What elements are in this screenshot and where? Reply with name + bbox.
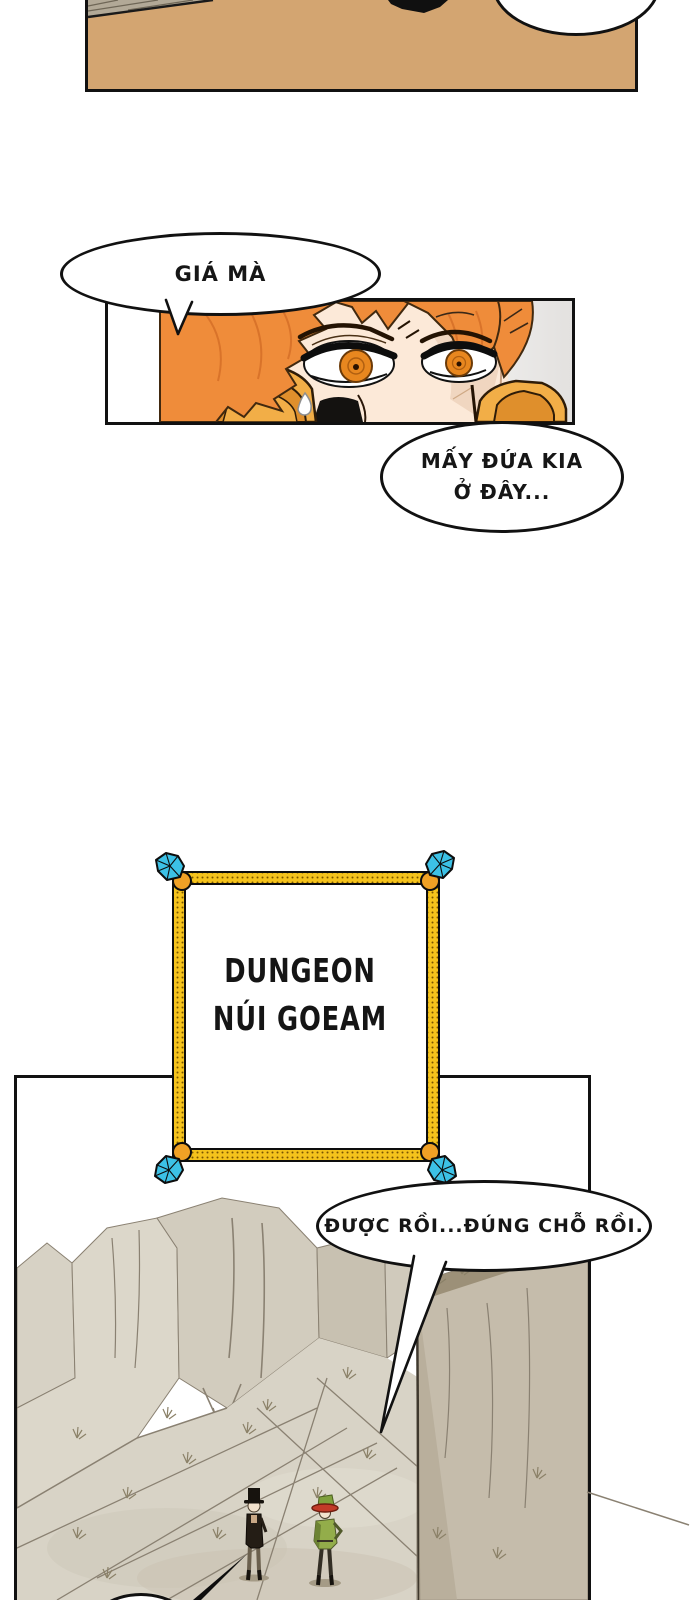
sign-subtitle: NÚI GOEAM <box>183 995 417 1043</box>
speech-bubble-gia-ma: GIÁ MÀ <box>60 232 381 316</box>
sign-text: DUNGEON NÚI GOEAM <box>150 947 450 1043</box>
bubble-text-gia-ma: GIÁ MÀ <box>175 262 267 286</box>
speech-bubble-may-dua: MẤY ĐỨA KIA Ở ĐÂY... <box>380 421 624 533</box>
bubble-text-duoc-roi: ĐƯỢC RỒI...ĐÚNG CHỖ RỒI. <box>324 1215 644 1237</box>
gem-icon <box>155 1156 183 1183</box>
stray-pencil-line <box>585 1485 690 1530</box>
speech-bubble-duoc-roi: ĐƯỢC RỒI...ĐÚNG CHỖ RỒI. <box>316 1180 652 1272</box>
bubble-text-may-dua-line2: Ở ĐÂY... <box>454 477 551 508</box>
comic-page: GIÁ MÀ <box>0 0 690 1600</box>
right-eye <box>422 342 496 382</box>
hair-tuft <box>388 0 448 13</box>
sign-title: DUNGEON <box>183 947 417 995</box>
bubble-tail-duoc-roi <box>375 1250 455 1440</box>
gem-icon <box>156 853 184 880</box>
bubble-tail-bottom-partial <box>190 1550 252 1600</box>
left-eye <box>304 341 394 387</box>
dungeon-sign: DUNGEON NÚI GOEAM <box>150 845 450 1185</box>
bubble-text-may-dua-line1: MẤY ĐỨA KIA <box>421 446 583 477</box>
gem-icon <box>426 851 454 878</box>
bubble-tail-gia-ma <box>158 290 202 340</box>
